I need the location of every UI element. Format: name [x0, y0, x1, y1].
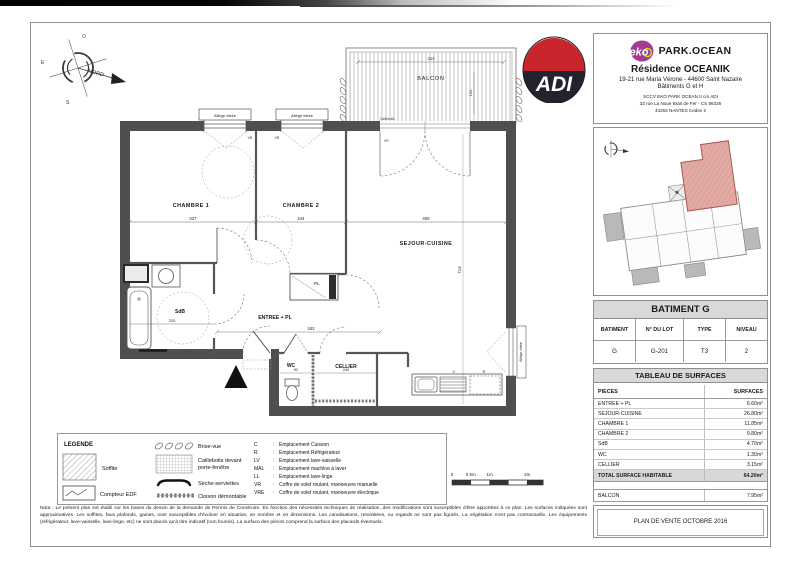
dim-sdb: 220 [169, 318, 176, 323]
scale-bar: 0 0.5m 1m 2m [446, 466, 550, 494]
vr-label-2: VR [275, 136, 280, 140]
dim-entree: 342 [307, 326, 315, 331]
north-arrow [111, 73, 126, 84]
seche-label: Sèche-serviettes [198, 481, 239, 487]
table-row: CHAMBRE 2 9.80m² [594, 430, 767, 440]
room-label-cellier: CELLIER [335, 364, 357, 370]
surfaces-table-title: TABLEAU DE SURFACES [594, 369, 767, 383]
abbrev-sep: : [273, 442, 274, 448]
abbrev-code: MAL [254, 466, 265, 472]
abbrev-desc: Emplacement Cuisson [279, 442, 329, 448]
caillebotis-label-2: porte-fenêtre [198, 465, 230, 471]
eko-logo-text: eko [630, 47, 649, 59]
total-value: 64.20m² [704, 470, 767, 481]
key-plan-map [594, 128, 767, 295]
table-row: WC 1.30m² [594, 450, 767, 460]
abbrev-desc: Emplacement Réfrigérateur [279, 450, 340, 456]
footnote: Nota : Le présent plan est établi sur le… [40, 506, 587, 527]
compass-bottom-letter: S [66, 100, 70, 106]
scale-0: 0 [451, 472, 454, 477]
caillebotis-label: Caillebotis [380, 117, 395, 121]
compteur-label: Compteur EDF [100, 492, 137, 498]
total-label: TOTAL SURFACE HABITABLE [594, 473, 704, 479]
building-table-grid: BATIMENT N° DU LOT TYPE NIVEAU G G-201 T… [594, 319, 767, 362]
toilet [285, 379, 299, 401]
dim-balcon-depth: 190 [468, 89, 473, 96]
brise-vue-label: Brise-vue [198, 444, 221, 450]
abbrev-code: C [254, 442, 258, 448]
hob-label: C [453, 369, 456, 374]
abbrev-code: VRE [254, 490, 265, 496]
fridge-label: R [483, 369, 486, 374]
building-col-header: BATIMENT [594, 319, 636, 341]
table-row: CELLIER 3.15m² [594, 460, 767, 470]
row-value: 26.80m² [704, 409, 767, 418]
surfaces-col-header: SURFACES [704, 385, 767, 398]
scale-2: 2m [524, 472, 531, 477]
row-value: 9.80m² [704, 430, 767, 439]
table-row: SdB 4.70m² [594, 440, 767, 450]
compass-left-letter: E [41, 60, 45, 66]
title-block: eko PARK.OCEAN Résidence OCEANIK 19-21 r… [593, 33, 768, 124]
brand-name: PARK.OCEAN [659, 45, 732, 57]
entrance-marker [225, 365, 248, 388]
seche-swatch [158, 481, 190, 486]
building-footprint [596, 138, 764, 288]
abbrev-desc: Emplacement machine à laver [279, 466, 347, 472]
abbrev-code: LL [254, 474, 260, 480]
abbrev-desc: Emplacement lave-linge [279, 474, 333, 480]
row-value: 6.60m² [704, 399, 767, 408]
table-row: CHAMBRE 1 11.85m² [594, 419, 767, 429]
scale-1: 1m [486, 472, 493, 477]
balcony-label: BALCON [594, 493, 704, 499]
soffite-swatch [63, 454, 96, 480]
balcony-value: 7.95m² [704, 490, 767, 501]
room-label-sejour: SEJOUR-CUISINE [400, 241, 453, 247]
level-col-header: NIVEAU [726, 319, 767, 341]
table-row: SEJOUR-CUISINE 26.80m² [594, 409, 767, 419]
cloison-label: Cloison démontable [198, 494, 247, 500]
buildings-line: Bâtiments G et H [594, 84, 767, 90]
brand-row: eko PARK.OCEAN [594, 39, 767, 63]
room-label-entree: ENTREE + PL [258, 315, 292, 321]
abbrev-code: R [254, 450, 258, 456]
surfaces-table: TABLEAU DE SURFACES PIECES SURFACES ENTR… [593, 368, 768, 502]
pieces-col-header: PIECES [594, 389, 704, 395]
vr-label-3: VR [384, 139, 389, 143]
allege-label-3: Allège vitrée [519, 342, 523, 362]
row-value: 11.85m² [704, 419, 767, 428]
compteur-swatch [63, 486, 95, 500]
lot-value: G-201 [636, 341, 684, 362]
row-value: 3.15m² [704, 460, 767, 469]
legend-abbreviations: C : Emplacement Cuisson R : Emplacement … [254, 442, 379, 496]
developer-line-1: SCCV EKO PARK OCEAN II c/o ADI [594, 94, 767, 101]
table-gap [594, 482, 767, 489]
scale-05: 0.5m [466, 472, 476, 477]
abbrev-code: LV [254, 458, 260, 464]
key-plan-box [593, 127, 768, 296]
sale-plan-stamp: PLAN DE VENTE OCTOBRE 2016 [593, 505, 768, 538]
room-label-chambre1: CHAMBRE 1 [173, 203, 210, 209]
floor-plan-drawing: NORD O E S 414 [28, 22, 588, 462]
highlighted-unit [679, 141, 737, 211]
abbrev-sep: : [273, 474, 274, 480]
abbrev-sep: : [273, 450, 274, 456]
building-table-title: BATIMENT G [594, 301, 767, 319]
abbrev-sep: : [273, 490, 274, 496]
caillebotis-swatch [156, 455, 192, 473]
abbrev-code: VR [254, 482, 261, 488]
type-col-header: TYPE [684, 319, 726, 341]
abbrev-desc: Emplacement lave-vaisselle [279, 458, 341, 464]
stair-core [668, 184, 686, 201]
scan-artifact-2 [300, 5, 680, 7]
building-value: G [594, 341, 636, 362]
duct-box [124, 265, 148, 282]
room-label-wc: WC [287, 363, 296, 369]
row-label: CHAMBRE 1 [594, 421, 704, 427]
adi-logo: ADI [521, 35, 587, 103]
allege-label-1: Allège vitrée [214, 113, 237, 118]
room-label-chambre2: CHAMBRE 2 [283, 203, 320, 209]
row-label: CHAMBRE 2 [594, 431, 704, 437]
closet-pl: PL [290, 274, 338, 300]
adi-logo-text: ADI [535, 73, 573, 96]
abbrev-sep: : [273, 466, 274, 472]
type-value: T3 [684, 341, 726, 362]
balcony: 414 190 BALCON [339, 48, 523, 123]
row-label: WC [594, 452, 704, 458]
level-value: 2 [726, 341, 767, 362]
surfaces-header-row: PIECES SURFACES [594, 385, 767, 399]
abbrev-sep: : [273, 482, 274, 488]
row-label: SEJOUR-CUISINE [594, 411, 704, 417]
legend-title: LEGENDE [64, 442, 93, 448]
row-label: ENTREE + PL [594, 401, 704, 407]
building-table: BATIMENT G BATIMENT N° DU LOT TYPE NIVEA… [593, 300, 768, 364]
row-value: 1.30m² [704, 450, 767, 459]
dim-chambre2: 244 [297, 216, 305, 221]
brise-vue-swatch [154, 442, 194, 451]
vr-label-1: VR [248, 136, 253, 140]
bathtub [127, 287, 151, 349]
scale-segments [452, 480, 543, 485]
lot-col-header: N° DU LOT [636, 319, 684, 341]
sale-plan-stamp-text: PLAN DE VENTE OCTOBRE 2016 [597, 509, 764, 536]
room-label-pl: PL [314, 281, 320, 286]
dim-sejour-h: 714 [457, 266, 462, 274]
eko-logo: eko [630, 39, 654, 63]
row-label: CELLIER [594, 462, 704, 468]
legend: LEGENDE Soffite Compteur EDF Brise-vue C… [57, 433, 447, 505]
key-plan-compass [603, 140, 629, 158]
dim-balcon-width: 414 [428, 56, 436, 61]
total-row: TOTAL SURFACE HABITABLE 64.20m² [594, 470, 767, 482]
dim-chambre1: 327 [189, 216, 197, 221]
developer-line-3: 44263 NANTES Cedex 2 [594, 108, 767, 115]
caillebotis-label-1: Caillebotis devant [198, 458, 242, 464]
floor-plan-sheet: NORD O E S 414 [0, 0, 800, 565]
row-label: SdB [594, 441, 704, 447]
north-compass: NORD O E S [40, 30, 126, 106]
residence-address: 19-21 rue Maria Vérone - 44600 Saint Naz… [594, 77, 767, 83]
abbrev-desc: Coffre de volet roulant, manoeuvre manue… [279, 482, 378, 488]
allege-label-2: Allège vitrée [291, 113, 314, 118]
residence-name: Résidence OCEANIK [594, 64, 767, 75]
row-value: 4.70m² [704, 440, 767, 449]
developer-info: SCCV EKO PARK OCEAN II c/o ADI 32 rue La… [594, 94, 767, 115]
abbrev-desc: Coffre de volet roulant, manoeuvre élect… [279, 490, 379, 496]
balcony-row: BALCON 7.95m² [594, 489, 767, 502]
dim-sejour-w: 400 [422, 216, 430, 221]
abbrev-sep: : [273, 458, 274, 464]
developer-line-2: 32 rue La Noue Bras de Fer - CS 86326 [594, 101, 767, 108]
compass-top-letter: O [82, 34, 86, 40]
soffite-label: Soffite [102, 466, 118, 472]
room-label-balcon: BALCON [417, 76, 444, 82]
room-label-sdb: SdB [175, 309, 185, 315]
table-row: ENTREE + PL 6.60m² [594, 399, 767, 409]
